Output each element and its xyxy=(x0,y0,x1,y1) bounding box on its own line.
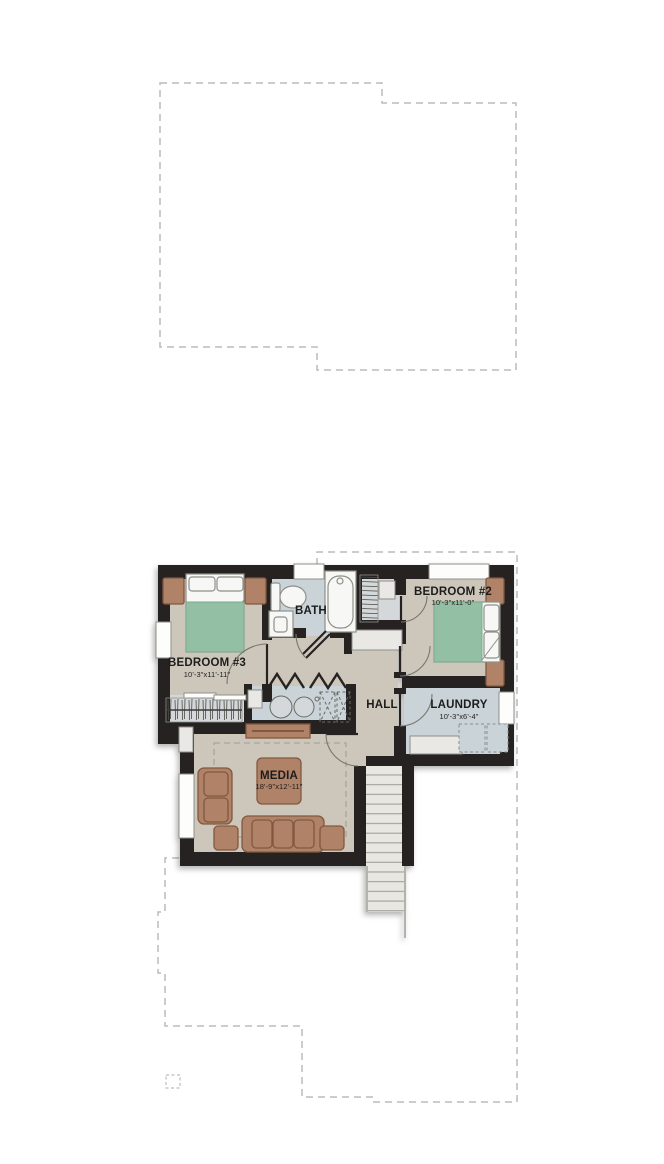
closet-slider-door-a xyxy=(184,693,216,698)
wall-laundry-left-upper xyxy=(394,688,406,694)
bedroom2-dims: 10'-3"x11'-0" xyxy=(432,598,475,607)
second-floor-plan: BEDROOM #3 10'-3"x11'-11" BATH BEDROOM #… xyxy=(156,564,514,938)
bedroom2-blanket xyxy=(434,602,482,662)
bath-window xyxy=(294,564,324,579)
bedroom2-pillow-top xyxy=(484,605,499,631)
closet-slider-door-b xyxy=(214,695,246,700)
media-sofa-bottom-cushion-1 xyxy=(252,820,272,848)
washer-symbol xyxy=(270,696,292,718)
wall-laundry-bottom xyxy=(402,754,514,766)
bedroom3-dims: 10'-3"x11'-11" xyxy=(184,670,231,679)
closet-shelf-box xyxy=(379,581,395,599)
media-sofa-bottom-cushion-3 xyxy=(294,820,314,848)
stair-treads xyxy=(366,766,404,912)
closet-shelving-hatch xyxy=(360,575,378,622)
media-chair-left xyxy=(214,826,238,850)
laundry-appliance-2 xyxy=(487,724,508,752)
laundry-counter xyxy=(410,736,462,754)
porch-post-marker xyxy=(166,1075,180,1088)
upper-roof-outline xyxy=(160,83,516,370)
laundry-appliance-1 xyxy=(459,724,485,752)
dryer-symbol xyxy=(294,697,314,717)
bedroom3-nightstand-right xyxy=(245,578,266,604)
floor-plan-svg: BEDROOM #3 10'-3"x11'-11" BATH BEDROOM #… xyxy=(0,0,664,1164)
media-sofa-left-cushion-2 xyxy=(204,798,228,822)
wall-closet2-right xyxy=(394,565,406,595)
bedroom3-blanket xyxy=(186,602,244,652)
wall-hallcloset-right xyxy=(346,684,356,726)
laundry-window xyxy=(499,692,514,724)
hall-label: HALL xyxy=(366,699,397,711)
wall-stair-right xyxy=(402,756,414,866)
stair-overlook-railing xyxy=(352,630,402,650)
bedroom2-nightstand-bottom xyxy=(486,660,504,686)
wall-stair-left xyxy=(354,766,366,866)
wall-laundry-left-lower xyxy=(394,726,406,756)
staircase xyxy=(366,766,405,938)
wall-bedroom3-lower xyxy=(262,684,272,702)
bedroom3-label: BEDROOM #3 xyxy=(168,657,246,669)
small-knob-symbol xyxy=(315,697,319,701)
laundry-label: LAUNDRY xyxy=(430,699,487,711)
laundry-dims: 10'-3"x6'-4" xyxy=(440,712,479,721)
media-window xyxy=(179,774,194,838)
bedroom3-window xyxy=(156,622,171,658)
hall-closet-shelf xyxy=(248,690,262,708)
media-label: MEDIA xyxy=(260,770,298,782)
wall-closet3-bottom xyxy=(158,722,252,734)
bathtub-faucet xyxy=(337,578,343,584)
vanity-sink xyxy=(274,617,287,632)
bedroom3-pillow-left xyxy=(189,577,215,591)
wall-stair-entry xyxy=(366,756,402,766)
bath-label: BATH xyxy=(295,605,327,617)
chase-box xyxy=(179,727,193,752)
media-sofa-left-cushion-1 xyxy=(204,772,228,796)
media-sofa-bottom-cushion-2 xyxy=(273,820,293,848)
toilet-tank xyxy=(271,583,280,611)
bedroom3-pillow-right xyxy=(217,577,243,591)
wall-media-bottom xyxy=(180,852,366,866)
bedroom2-label: BEDROOM #2 xyxy=(414,586,492,598)
media-dims: 18'-9"x12'-11" xyxy=(256,782,303,791)
floor-plan-page: BEDROOM #3 10'-3"x11'-11" BATH BEDROOM #… xyxy=(0,0,664,1164)
roof-outline-path xyxy=(160,83,516,370)
bedroom2-window xyxy=(429,564,489,579)
media-chair-right xyxy=(320,826,344,850)
bedroom3-nightstand-left xyxy=(163,578,184,604)
